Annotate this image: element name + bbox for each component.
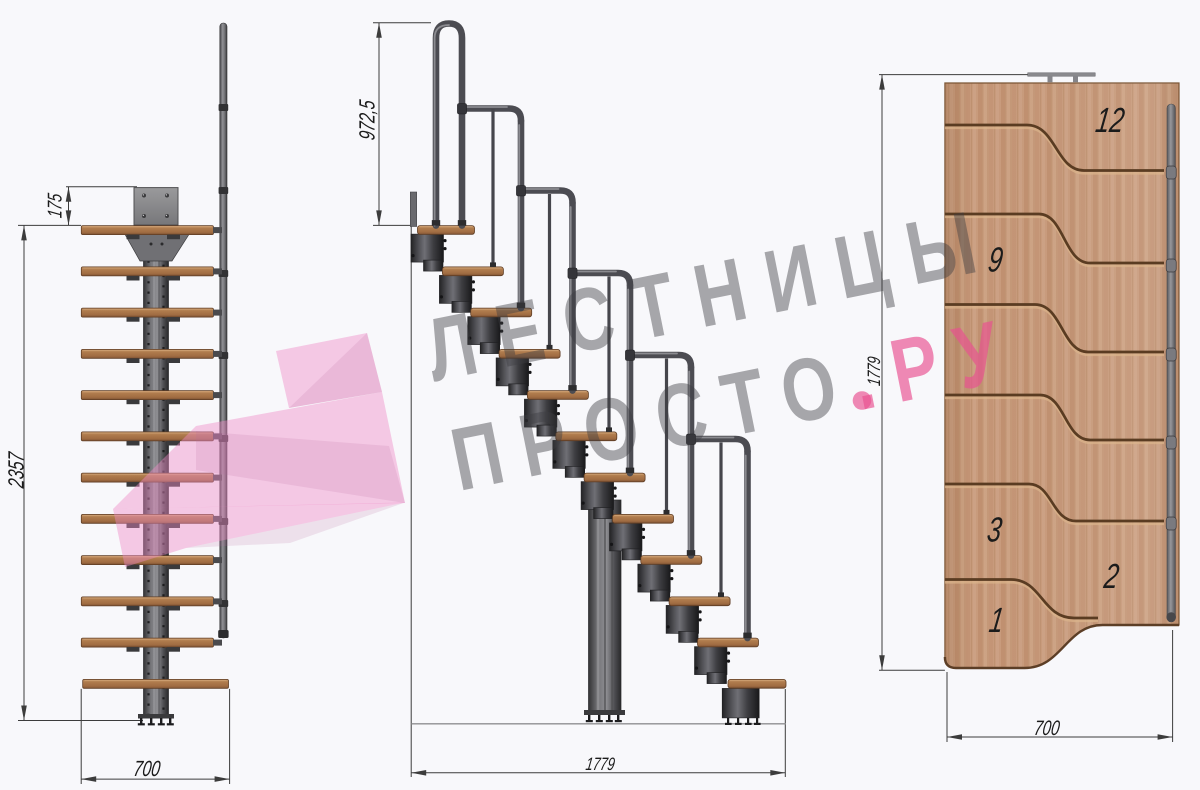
svg-text:1779: 1779 <box>584 755 616 774</box>
svg-text:175: 175 <box>43 192 66 219</box>
svg-text:972,5: 972,5 <box>356 98 380 141</box>
svg-text:700: 700 <box>1033 716 1062 740</box>
svg-text:12: 12 <box>1093 100 1127 140</box>
svg-text:700: 700 <box>132 758 162 782</box>
svg-text:2357: 2357 <box>5 450 29 490</box>
